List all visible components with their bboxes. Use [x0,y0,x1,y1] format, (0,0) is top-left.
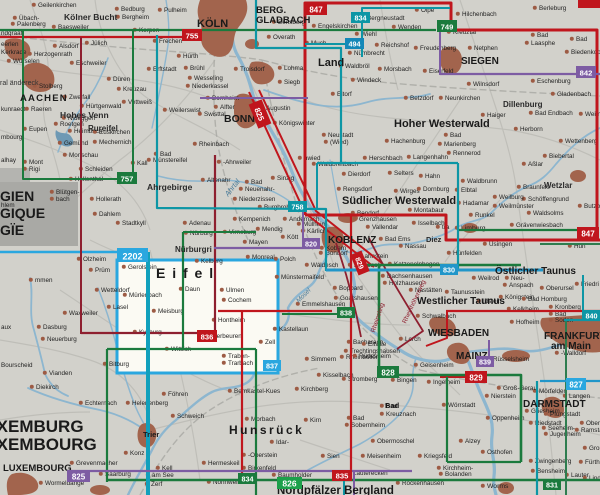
svg-text:KOBLENZ: KOBLENZ [328,235,376,246]
svg-text:Alfter: Alfter [220,104,235,111]
svg-text:Cochem: Cochem [228,297,251,304]
svg-text:Alzey: Alzey [465,438,481,445]
svg-text:Grävenwiesbach: Grävenwiesbach [516,222,563,229]
svg-text:AACHEN: AACHEN [20,93,68,104]
svg-text:Windeck: Windeck [357,77,382,84]
svg-text:Hürth: Hürth [183,53,199,60]
svg-text:Kölner Bucht: Kölner Bucht [64,12,118,22]
svg-text:755: 755 [186,32,199,41]
svg-text:Rengsdorf: Rengsdorf [343,186,372,193]
svg-text:Bedburg: Bedburg [121,6,145,13]
svg-text:Geisenheim: Geisenheim [420,362,454,369]
svg-text:Bad: Bad [537,32,549,39]
svg-text:Kempenich: Kempenich [239,216,271,223]
svg-text:Freudenberg: Freudenberg [420,45,457,52]
svg-text:Dierdorf: Dierdorf [348,171,371,178]
svg-text:Blütgen-: Blütgen- [56,189,79,196]
svg-text:Simmern: Simmern [311,356,337,363]
svg-text:Bingen: Bingen [397,377,417,384]
svg-text:Vallendar: Vallendar [372,224,398,231]
svg-text:Fürth: Fürth [585,459,600,466]
svg-text:Geilenkirchen: Geilenkirchen [38,2,77,9]
svg-text:Marienberg: Marienberg [444,141,476,148]
svg-text:Herborn: Herborn [520,126,543,133]
svg-text:Hohes Venn: Hohes Venn [60,110,109,120]
svg-text:840: 840 [586,312,598,321]
svg-text:834: 834 [355,14,367,23]
svg-text:Meisburg: Meisburg [158,308,184,315]
svg-text:Raeren: Raeren [31,106,52,113]
svg-text:Polch: Polch [280,256,296,263]
svg-text:Idar-: Idar- [276,439,289,446]
svg-text:Dachsenhausen: Dachsenhausen [387,273,433,280]
svg-text:Münstermaifeld: Münstermaifeld [281,274,325,281]
svg-text:Würselen: Würselen [13,58,40,65]
svg-text:Grenzhausen: Grenzhausen [359,216,397,223]
svg-text:834: 834 [242,475,254,484]
svg-text:842: 842 [580,69,593,78]
svg-text:Prüm: Prüm [95,267,110,274]
svg-text:LUXEMBOURG: LUXEMBOURG [0,435,97,454]
svg-text:Haiger: Haiger [487,112,506,119]
svg-text:Hollerath: Hollerath [96,196,122,203]
svg-text:Biebertal: Biebertal [549,153,574,160]
svg-text:Waldbröl: Waldbröl [345,63,370,70]
svg-text:839: 839 [479,358,491,367]
svg-text:Bad Homburg: Bad Homburg [528,296,567,303]
svg-text:BELGIEN: BELGIEN [0,188,34,204]
svg-text:Goarshausen: Goarshausen [340,295,378,302]
svg-text:Kirn: Kirn [310,417,322,424]
svg-text:Konz: Konz [130,450,144,457]
svg-text:Sobernheim: Sobernheim [351,422,385,429]
svg-text:Niederkassel: Niederkassel [192,83,228,90]
svg-text:Bolanden: Bolanden [445,471,472,478]
svg-text:LUXEMBOURG: LUXEMBOURG [3,463,72,474]
svg-text:Emmelshausen: Emmelshausen [302,301,346,308]
svg-text:Kall: Kall [137,160,148,167]
svg-text:Laasphe: Laasphe [531,40,556,47]
svg-text:bach: bach [56,196,70,203]
svg-text:BELGIQUE: BELGIQUE [0,205,45,221]
svg-text:Diekirch: Diekirch [36,384,59,391]
svg-text:Ulmen: Ulmen [226,287,245,294]
svg-text:Selters: Selters [394,170,414,177]
svg-text:Gladenbach: Gladenbach [557,91,591,98]
svg-text:Trarbach: Trarbach [228,360,253,367]
svg-text:Zerf: Zerf [151,481,162,488]
svg-text:758: 758 [292,203,304,212]
svg-text:WIESBADEN: WIESBADEN [428,328,489,339]
svg-text:Wörrstadt: Wörrstadt [448,402,476,409]
svg-text:828: 828 [381,369,395,378]
svg-text:Kreuzau: Kreuzau [123,86,147,93]
svg-text:Neuenahr-: Neuenahr- [245,186,275,193]
svg-text:Bad Ems: Bad Ems [385,236,411,243]
svg-text:Hürtgenwald: Hürtgenwald [86,103,122,110]
svg-text:LUXEMBURG: LUXEMBURG [0,417,84,436]
svg-text:757: 757 [121,175,134,184]
svg-text:Siegb: Siegb [284,79,301,86]
svg-text:Altenahr: Altenahr [207,177,230,184]
svg-text:Frechen: Frechen [159,38,183,45]
svg-text:836: 836 [201,333,214,342]
svg-text:Helenenberg: Helenenberg [132,400,169,407]
svg-text:Troisdorf: Troisdorf [240,66,265,73]
svg-text:Östlicher Taunus: Östlicher Taunus [495,264,576,277]
svg-text:Eupen: Eupen [29,126,48,133]
svg-text:Mörfelden: Mörfelden [539,388,567,395]
svg-text:749: 749 [441,23,454,32]
svg-text:Neuerburg: Neuerburg [47,336,77,343]
svg-text:Hunsrück: Hunsrück [229,423,304,437]
svg-text:Swisttal: Swisttal [204,111,226,118]
svg-text:Alsdorf: Alsdorf [59,43,79,50]
svg-text:(Wied): (Wied) [330,139,349,146]
svg-text:Burgbrohl: Burgbrohl [264,204,291,211]
svg-text:Kriegsfeld: Kriegsfeld [424,453,452,460]
svg-text:Ahrgebirge: Ahrgebirge [147,182,193,192]
svg-text:Gerolstein: Gerolstein [128,264,157,271]
svg-text:Taunusstein: Taunusstein [451,289,485,296]
svg-text:Brühl: Brühl [190,65,205,72]
svg-text:Worms: Worms [487,483,509,490]
svg-text:829: 829 [469,374,483,383]
svg-text:Kärlich: Kärlich [307,228,327,235]
svg-text:-Oberstein: -Oberstein [248,452,278,459]
svg-text:Berleburg: Berleburg [539,5,567,12]
svg-text:Neunkirchen: Neunkirchen [445,95,481,102]
svg-text:Nümbrecht: Nümbrecht [354,50,385,57]
svg-text:825: 825 [72,473,86,482]
svg-text:Oppenheim: Oppenheim [492,415,525,422]
svg-text:GLADBACH: GLADBACH [256,15,310,26]
svg-text:Stolberg: Stolberg [39,83,63,90]
svg-text:Netphen: Netphen [474,45,498,52]
svg-text:nwied: nwied [304,155,321,162]
svg-text:Daun: Daun [185,286,201,293]
svg-text:831: 831 [546,481,558,490]
svg-text:847: 847 [581,230,595,239]
svg-text:Kelberg: Kelberg [201,258,223,265]
svg-text:Bad Endbach: Bad Endbach [535,110,573,117]
svg-text:Sien: Sien [327,453,340,460]
svg-text:Usingen: Usingen [489,241,513,248]
svg-text:Bad: Bad [251,179,263,186]
svg-text:Diez: Diez [426,235,442,244]
svg-text:Montabaur: Montabaur [414,207,444,214]
svg-text:Ober-: Ober- [586,420,600,427]
svg-text:Mechernich: Mechernich [99,139,132,146]
svg-text:Reichshof: Reichshof [381,42,409,49]
svg-text:-Ahrweiler: -Ahrweiler [223,159,251,166]
svg-text:Bourscheid: Bourscheid [1,362,33,369]
svg-text:Nierstein: Nierstein [491,393,516,400]
svg-text:Nassau: Nassau [405,243,427,250]
svg-text:Dasburg: Dasburg [43,324,67,331]
svg-text:Obermoschel: Obermoschel [377,438,414,445]
svg-text:Meisenheim: Meisenheim [367,453,401,460]
svg-text:am Main: am Main [551,341,591,352]
svg-text:aux: aux [1,324,12,331]
svg-text:Föhren: Föhren [168,391,188,398]
svg-text:Wesseling: Wesseling [194,75,223,82]
svg-text:Rigi: Rigi [29,166,40,173]
svg-text:Gemünd: Gemünd [64,140,89,147]
svg-text:Waldsolms: Waldsolms [533,210,564,217]
svg-text:Schwalbach: Schwalbach [422,313,456,320]
svg-text:Wirges: Wirges [400,188,420,195]
svg-text:Lohmar: Lohmar [284,65,305,72]
svg-text:494: 494 [349,40,361,49]
svg-text:Münstereifel: Münstereifel [153,157,187,164]
svg-text:Zell: Zell [265,339,275,346]
svg-text:Traben-: Traben- [228,353,250,360]
svg-text:Grevenmacher: Grevenmacher [76,460,118,467]
svg-text:Jülich: Jülich [91,40,108,47]
svg-text:Kött: Kött [287,234,298,241]
svg-text:Wettenberg: Wettenberg [565,138,598,145]
svg-text:Westlicher Taunus: Westlicher Taunus [417,296,505,307]
svg-text:Kirchberg: Kirchberg [301,386,328,393]
svg-text:Rheinbach: Rheinbach [199,141,230,148]
svg-text:Herschbach: Herschbach [369,155,403,162]
svg-text:Schweich: Schweich [177,413,204,420]
svg-text:Echternach: Echternach [85,400,117,407]
svg-text:Palenberg: Palenberg [17,21,46,28]
svg-text:E i f e l: E i f e l [156,265,215,281]
svg-text:Niederzissen: Niederzissen [239,196,276,203]
svg-text:Bitburg: Bitburg [109,361,129,368]
svg-text:2202: 2202 [122,252,142,262]
svg-text:Elbtal: Elbtal [461,187,477,194]
svg-text:Eitorf: Eitorf [337,91,352,98]
svg-text:Weilerswist: Weilerswist [169,107,201,114]
svg-text:Hahn: Hahn [425,173,441,180]
svg-text:Sinzig: Sinzig [277,175,295,182]
svg-text:837: 837 [266,362,278,371]
svg-text:Weilburg: Weilburg [499,194,524,201]
svg-text:Hoher Westerwald: Hoher Westerwald [394,118,490,130]
svg-text:Osthofen: Osthofen [487,449,513,456]
svg-text:Monschau: Monschau [69,152,99,159]
svg-text:Bad: Bad [576,36,588,43]
svg-text:Bensheim: Bensheim [537,468,565,475]
svg-text:Herzogenrath: Herzogenrath [34,51,73,58]
svg-text:Königswinter: Königswinter [279,120,315,127]
svg-text:Rüsselsheim: Rüsselsheim [493,356,529,363]
svg-text:Lasel: Lasel [113,304,128,311]
svg-text:826: 826 [282,479,296,489]
svg-text:Rennerod: Rennerod [453,150,481,157]
svg-text:Olzheim: Olzheim [83,256,106,263]
svg-text:Hachenburg: Hachenburg [391,138,426,145]
svg-text:Dornburg: Dornburg [423,186,450,193]
svg-text:Vianden: Vianden [49,370,72,377]
svg-text:Wiehl: Wiehl [361,31,377,38]
svg-text:Südlicher Westerwald: Südlicher Westerwald [342,195,456,207]
svg-text:Eltville: Eltville [368,341,387,348]
svg-text:Aßlar: Aßlar [528,161,543,168]
svg-text:Rureifel: Rureifel [88,124,118,133]
svg-text:Wetzlar: Wetzlar [544,181,572,190]
svg-text:am See: am See [152,472,174,479]
svg-text:Waxweiler: Waxweiler [69,310,98,317]
svg-text:Morsbach: Morsbach [384,66,412,73]
svg-text:DARMSTADT: DARMSTADT [523,399,586,410]
svg-text:Kreuznach: Kreuznach [386,411,417,418]
svg-text:BONN: BONN [224,113,255,125]
svg-text:mmen: mmen [35,277,53,284]
svg-text:Hermeskeil: Hermeskeil [208,460,240,467]
svg-text:Stromberg: Stromberg [348,376,378,383]
svg-text:Runkel: Runkel [475,212,495,219]
svg-text:Stadtkyll: Stadtkyll [122,220,146,227]
svg-text:Zweifall: Zweifall [69,94,90,101]
svg-text:Mayen: Mayen [249,239,268,246]
svg-text:Langenhahn: Langenhahn [413,154,449,161]
svg-text:Hofheim: Hofheim [516,319,539,326]
svg-text:Hadamar: Hadamar [463,200,489,207]
svg-text:Land: Land [318,57,344,69]
svg-text:BELGÏE: BELGÏE [0,222,24,238]
svg-text:Morbach: Morbach [251,416,276,423]
svg-text:Dahlem: Dahlem [99,211,121,218]
svg-text:827: 827 [569,381,583,390]
svg-text:mbourg: mbourg [1,134,23,141]
svg-text:Bergneustadt: Bergneustadt [367,15,405,22]
svg-text:Düren: Düren [113,76,131,83]
svg-text:Dillenburg: Dillenburg [503,100,543,109]
svg-text:Schöffengrund: Schöffengrund [528,196,569,203]
svg-text:820: 820 [305,240,317,249]
svg-text:SIEGEN: SIEGEN [461,56,499,67]
svg-text:Bad: Bad [450,132,462,139]
svg-text:Hilchenbach: Hilchenbach [462,11,497,18]
svg-text:KÖLN: KÖLN [197,17,228,30]
svg-text:Pulheim: Pulheim [164,7,187,14]
svg-text:Bad: Bad [353,415,365,422]
svg-text:Betzdorf: Betzdorf [410,95,434,102]
svg-text:830: 830 [443,266,455,275]
svg-text:Oberursel: Oberursel [546,285,574,292]
svg-text:Trier: Trier [143,430,159,439]
svg-text:Weilmünster: Weilmünster [499,203,534,210]
svg-text:Bergheim: Bergheim [122,14,149,21]
svg-text:eerlen: eerlen [1,41,19,48]
svg-text:Mendig: Mendig [262,226,283,233]
svg-text:Waldbrunn: Waldbrunn [467,178,498,185]
svg-text:Nürburgri: Nürburgri [175,245,212,254]
svg-text:Overath: Overath [273,34,296,41]
svg-text:835: 835 [336,472,349,481]
svg-text:Ramstadt: Ramstadt [581,427,600,434]
svg-text:alhay: alhay [1,157,17,164]
svg-text:Eschenburg: Eschenburg [537,78,571,85]
svg-text:Wilnsdorf: Wilnsdorf [473,81,499,88]
svg-text:847: 847 [309,6,323,15]
svg-text:Anspach: Anspach [509,282,534,289]
svg-text:Vettweiß: Vettweiß [128,99,152,106]
svg-text:Kastellaun: Kastellaun [279,326,309,333]
svg-text:Groß: Groß [589,445,600,452]
svg-text:Schleiden: Schleiden [85,166,113,173]
svg-text:Bad: Bad [385,401,400,410]
svg-text:Rüdesheim: Rüdesheim [359,353,391,360]
svg-text:Monreal: Monreal [252,254,275,261]
svg-text:Mont: Mont [29,159,43,166]
svg-text:Mürlenbach: Mürlenbach [129,292,162,299]
svg-text:ral ändereck: ral ändereck [0,80,39,87]
svg-text:Adenau: Adenau [189,220,211,227]
svg-text:838: 838 [340,309,352,318]
